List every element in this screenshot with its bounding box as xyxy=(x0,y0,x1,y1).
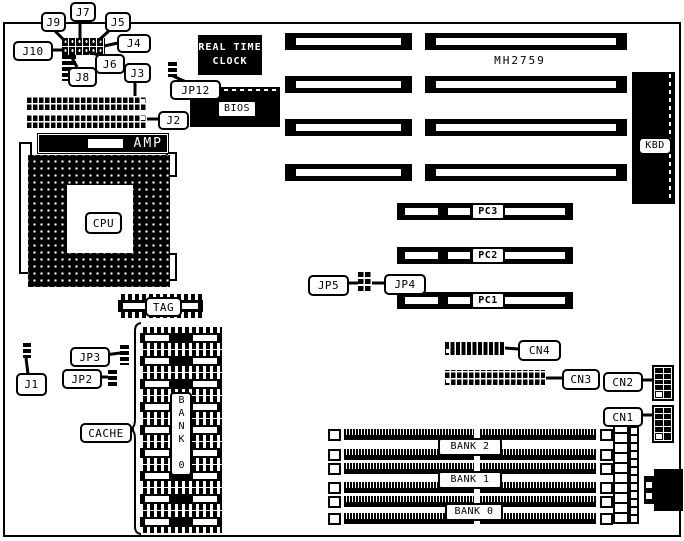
callout-jp4: JP4 xyxy=(384,274,426,295)
cn1-header xyxy=(652,405,674,443)
asic-part-number: MH2759 xyxy=(488,53,552,67)
cpu-label: CPU xyxy=(85,212,122,234)
isa-slot xyxy=(285,164,412,181)
callout-j1: J1 xyxy=(16,373,47,396)
real-time-clock-chip: REAL TIME CLOCK xyxy=(198,35,262,75)
jp5-jp4-jumper xyxy=(358,272,371,292)
kbd-label-text: KBD xyxy=(645,141,665,151)
slot-opening xyxy=(436,124,616,131)
isa-slot xyxy=(285,33,412,50)
cpu-label-text: CPU xyxy=(93,218,114,229)
power-connector-col2 xyxy=(629,425,639,524)
isa-slot xyxy=(425,164,627,181)
slot-opening xyxy=(296,169,401,176)
cache-chip xyxy=(140,488,222,510)
cn3-header xyxy=(445,370,545,385)
cn4-header xyxy=(445,342,505,355)
pc1-slot: PC1 xyxy=(397,292,573,309)
isa-slot xyxy=(425,76,627,93)
callout-jp3: JP3 xyxy=(70,347,110,367)
j3-pin1-marker xyxy=(141,99,145,103)
callout-j9: J9 xyxy=(41,12,66,32)
cn4-pin1-marker xyxy=(446,349,450,353)
tag-label: TAG xyxy=(145,297,182,317)
isa-slot xyxy=(285,119,412,136)
bank2-label: BANK 2 xyxy=(438,438,502,456)
amp-label: AMP xyxy=(134,136,163,151)
callout-j5: J5 xyxy=(105,12,131,32)
jumper-block xyxy=(62,37,105,55)
cache-chip xyxy=(140,511,222,533)
callout-j6: J6 xyxy=(95,54,125,74)
keyboard-din-connector xyxy=(654,469,683,511)
callout-j10: J10 xyxy=(13,41,53,61)
cn3-pin1-marker xyxy=(446,379,450,383)
bios-label-text: BIOS xyxy=(224,104,250,114)
isa-slot xyxy=(425,119,627,136)
j3-pin-strip xyxy=(27,97,147,110)
jp3-jumper xyxy=(120,345,129,365)
pc2-slot: PC2 xyxy=(397,247,573,264)
kbd-label: KBD xyxy=(638,137,672,155)
j1-jumper xyxy=(23,343,31,358)
tag-label-text: TAG xyxy=(153,302,174,313)
bios-label: BIOS xyxy=(217,100,257,118)
din-notch xyxy=(645,492,653,500)
callout-cn3: CN3 xyxy=(562,369,600,390)
rtc-label-line2: CLOCK xyxy=(212,55,247,69)
slot-opening xyxy=(436,81,616,88)
slot-opening xyxy=(296,124,401,131)
callout-j7: J7 xyxy=(70,2,96,22)
callout-jp5: JP5 xyxy=(308,275,349,296)
isa-slot xyxy=(425,33,627,50)
bank2-label-text: BANK 2 xyxy=(450,442,489,452)
rtc-label-line1: REAL TIME xyxy=(198,41,261,55)
callout-j2: J2 xyxy=(158,111,189,130)
bank1-label-text: BANK 1 xyxy=(450,475,489,485)
bank0-label-text: BANK 0 xyxy=(454,507,493,517)
callout-jp2: JP2 xyxy=(62,369,102,389)
pc3-label: PC3 xyxy=(471,203,505,220)
amp-socket-bar: AMP xyxy=(37,133,169,154)
callout-cn1: CN1 xyxy=(603,407,643,427)
callout-j8: J8 xyxy=(68,67,97,87)
callout-cache: CACHE xyxy=(80,423,132,443)
power-connector-col1 xyxy=(613,425,629,524)
callout-j4: J4 xyxy=(117,34,151,53)
jp12-jumper xyxy=(168,62,177,77)
cache-chip xyxy=(140,327,222,349)
cache-bank0-label: BANK 0 xyxy=(170,392,192,476)
slot-opening xyxy=(296,38,401,45)
din-notch xyxy=(645,481,653,489)
callout-cn2: CN2 xyxy=(603,372,643,392)
pc3-slot: PC3 xyxy=(397,203,573,220)
pc2-label: PC2 xyxy=(471,247,505,264)
motherboard-diagram: REAL TIME CLOCK BIOS MH2759 KBD AMP CPU … xyxy=(0,0,684,541)
slot-opening xyxy=(436,169,616,176)
callout-jp12: JP12 xyxy=(170,80,221,100)
isa-slot xyxy=(285,76,412,93)
callout-cn4: CN4 xyxy=(518,340,561,361)
j2-pin1-marker xyxy=(141,116,145,120)
bank1-label: BANK 1 xyxy=(438,471,502,489)
jp2-jumper xyxy=(108,370,117,386)
j2-pin-strip xyxy=(27,114,147,128)
cn2-header xyxy=(652,365,674,401)
cache-chip xyxy=(140,350,222,372)
slot-opening xyxy=(296,81,401,88)
pc1-label: PC1 xyxy=(471,292,505,309)
callout-j3: J3 xyxy=(124,63,151,83)
bank0-label: BANK 0 xyxy=(445,503,503,521)
amp-window xyxy=(88,139,123,148)
slot-opening xyxy=(436,38,616,45)
